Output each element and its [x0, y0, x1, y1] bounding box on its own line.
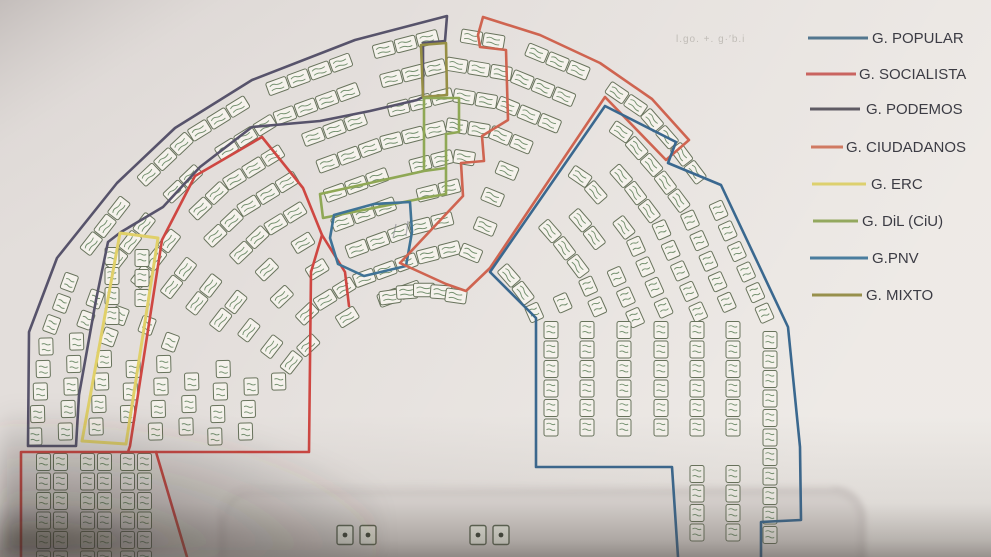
svg-text:G. POPULAR: G. POPULAR [872, 30, 964, 47]
svg-text:G. MIXTO: G. MIXTO [866, 287, 933, 304]
svg-text:G. PODEMOS: G. PODEMOS [866, 101, 963, 118]
svg-text:G. ERC: G. ERC [871, 176, 923, 193]
svg-text:G. DiL (CiU): G. DiL (CiU) [862, 213, 943, 230]
svg-text:G. CIUDADANOS: G. CIUDADANOS [846, 139, 966, 156]
svg-text:G. SOCIALISTA: G. SOCIALISTA [859, 66, 966, 83]
svg-text:l.go. +. g·′b.i: l.go. +. g·′b.i [676, 34, 745, 45]
svg-text:G.PNV: G.PNV [872, 250, 919, 267]
